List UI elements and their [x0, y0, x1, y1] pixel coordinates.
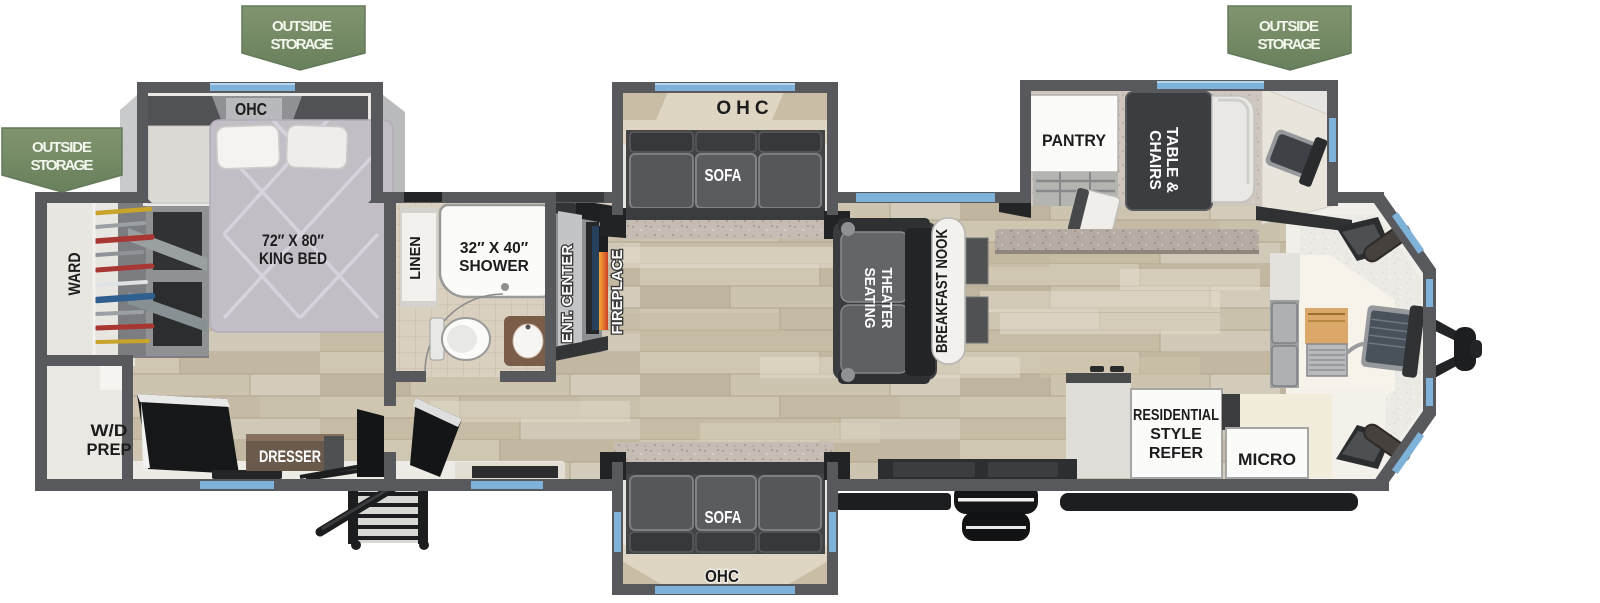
svg-text:FIREPLACE: FIREPLACE — [609, 249, 626, 334]
svg-text:OHC: OHC — [235, 99, 267, 119]
svg-text:OHC: OHC — [716, 98, 773, 119]
svg-text:ENT. CENTER: ENT. CENTER — [559, 245, 576, 344]
svg-text:SHOWER: SHOWER — [459, 258, 529, 275]
svg-text:DRESSER: DRESSER — [259, 447, 321, 466]
svg-text:LINEN: LINEN — [408, 236, 424, 280]
svg-text:OHC: OHC — [705, 566, 739, 586]
svg-text:OUTSIDE: OUTSIDE — [32, 139, 92, 156]
svg-text:SOFA: SOFA — [705, 507, 742, 527]
svg-text:W/D: W/D — [91, 421, 128, 440]
svg-text:BREAKFAST NOOK: BREAKFAST NOOK — [934, 228, 951, 353]
svg-text:SEATING: SEATING — [861, 268, 878, 329]
svg-text:CHAIRS: CHAIRS — [1146, 130, 1163, 189]
svg-text:PREP: PREP — [87, 440, 132, 459]
svg-text:MICRO: MICRO — [1238, 450, 1296, 469]
svg-text:PANTRY: PANTRY — [1042, 131, 1107, 150]
svg-text:SOFA: SOFA — [705, 165, 742, 185]
svg-text:WARD: WARD — [65, 253, 84, 296]
svg-text:KING BED: KING BED — [259, 249, 327, 268]
svg-text:32″ X 40″: 32″ X 40″ — [460, 240, 529, 257]
svg-text:STORAGE: STORAGE — [271, 36, 334, 53]
svg-text:THEATER: THEATER — [878, 268, 895, 329]
svg-text:RESIDENTIAL: RESIDENTIAL — [1133, 407, 1219, 424]
svg-text:TABLE &: TABLE & — [1163, 127, 1180, 193]
svg-text:OUTSIDE: OUTSIDE — [1259, 18, 1319, 35]
svg-text:OUTSIDE: OUTSIDE — [272, 18, 332, 35]
svg-text:STYLE: STYLE — [1150, 426, 1202, 443]
svg-text:STORAGE: STORAGE — [31, 157, 94, 174]
svg-text:72″ X 80″: 72″ X 80″ — [262, 231, 324, 250]
svg-text:REFER: REFER — [1149, 445, 1204, 462]
svg-text:STORAGE: STORAGE — [1258, 36, 1321, 53]
